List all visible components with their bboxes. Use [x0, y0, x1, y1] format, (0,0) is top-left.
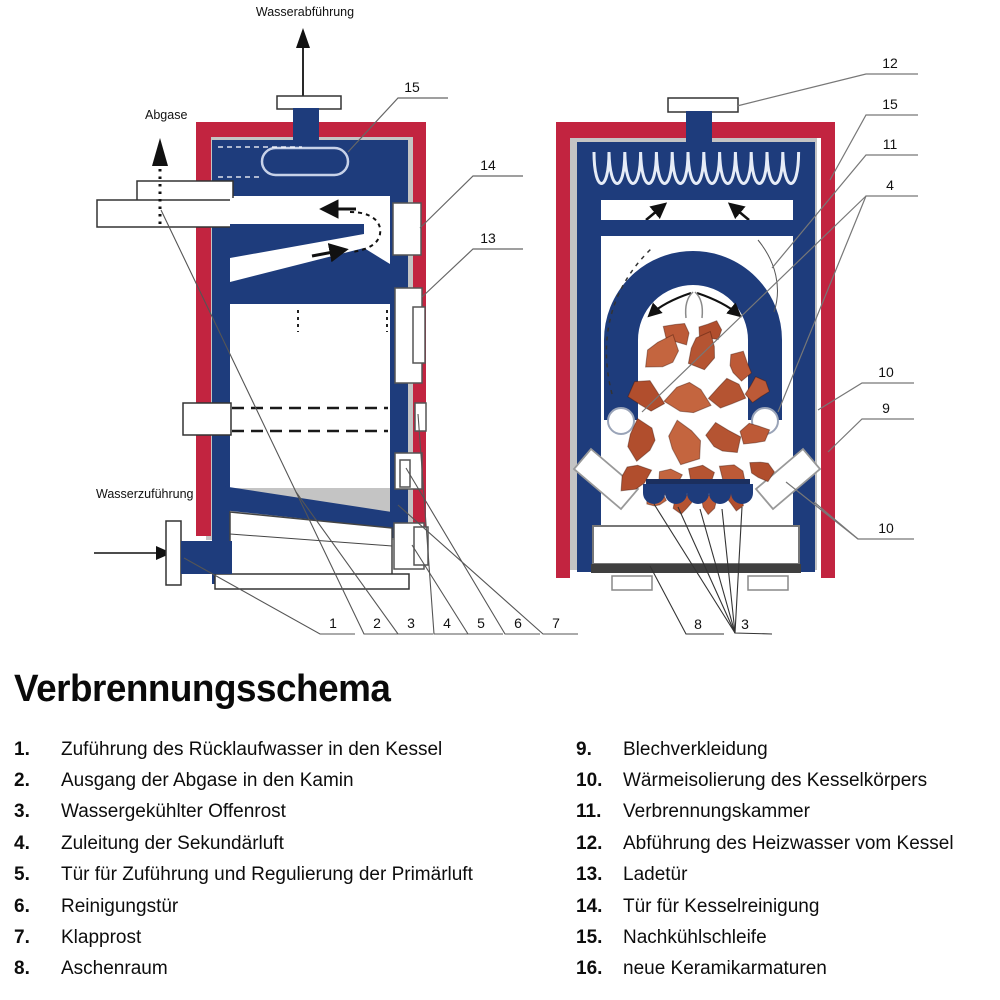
legend-item: 9.Blechverkleidung [576, 734, 996, 765]
legend-number: 9. [576, 739, 623, 761]
air-nozzle-left [608, 408, 634, 434]
legend-item: 16.neue Keramikarmaturen [576, 954, 996, 985]
legend-item: 5.Tür für Zuführung und Regulierung der … [14, 860, 566, 891]
part-number-3: 3 [407, 615, 415, 631]
legend-number: 1. [14, 739, 61, 761]
legend-label: Aschenraum [61, 958, 566, 980]
foot-right [748, 576, 788, 590]
flue-label: Abgase [145, 108, 187, 122]
legend-item: 2.Ausgang der Abgase in den Kamin [14, 765, 566, 796]
part-number-7: 7 [552, 615, 560, 631]
legend-label: Klapprost [61, 927, 566, 949]
cleaning-door-top [393, 203, 421, 255]
legend-label: Tür für Zuführung und Regulierung der Pr… [61, 864, 566, 886]
foot-left [612, 576, 652, 590]
legend-number: 2. [14, 770, 61, 792]
part-number-3-right: 3 [741, 616, 749, 632]
part-number-2: 2 [373, 615, 381, 631]
legend-label: Ladetür [623, 864, 996, 886]
right-ash-chamber [591, 526, 801, 590]
water-out-label: Wasserabführung [256, 5, 354, 19]
legend-item: 11.Verbrennungskammer [576, 797, 996, 828]
legend-label: Zuführung des Rücklaufwasser in den Kess… [61, 739, 566, 761]
callout-number-14: 14 [480, 157, 496, 173]
legend-item: 3.Wassergekühlter Offenrost [14, 797, 566, 828]
legend-label: neue Keramikarmaturen [623, 958, 996, 980]
legend-number: 13. [576, 864, 623, 886]
legend-number: 14. [576, 896, 623, 918]
legend-label: Zuleitung der Sekundärluft [61, 833, 566, 855]
callout-number-9: 9 [882, 400, 890, 416]
legend-item: 8.Aschenraum [14, 954, 566, 985]
page-title: Verbrennungsschema [14, 668, 390, 711]
legend-label: Ausgang der Abgase in den Kamin [61, 770, 566, 792]
base-plate [215, 574, 409, 589]
legend-item: 13.Ladetür [576, 860, 996, 891]
legend-item: 15.Nachkühlschleife [576, 922, 996, 953]
legend-number: 12. [576, 833, 623, 855]
up-arrow-icon [296, 28, 310, 48]
left-bottom-numbers: 1 2 3 4 5 6 7 [329, 615, 560, 631]
legend-item: 1.Zuführung des Rücklaufwasser in den Ke… [14, 734, 566, 765]
legend-number: 3. [14, 801, 61, 823]
legend-item: 14.Tür für Kesselreinigung [576, 891, 996, 922]
legend-number: 4. [14, 833, 61, 855]
callout-number-10-lower: 10 [878, 520, 894, 536]
legend-item: 6.Reinigungstür [14, 891, 566, 922]
legend-number: 11. [576, 801, 623, 823]
legend-number: 8. [14, 958, 61, 980]
legend-label: Wärmeisolierung des Kesselkörpers [623, 770, 996, 792]
legend-item: 10.Wärmeisolierung des Kesselkörpers [576, 765, 996, 796]
legend-number: 15. [576, 927, 623, 949]
legend-item: 12.Abführung des Heizwasser vom Kessel [576, 828, 996, 859]
legend-label: Wassergekühlter Offenrost [61, 801, 566, 823]
boiler-diagram: Wasserabführung Abgase Wasserzuführung 1… [0, 0, 1000, 662]
callout-number-15-left: 15 [404, 79, 420, 95]
legend-label: Tür für Kesselreinigung [623, 896, 996, 918]
legend-label: Reinigungstür [61, 896, 566, 918]
legend-number: 5. [14, 864, 61, 886]
legend-item: 7.Klapprost [14, 922, 566, 953]
legend-number: 16. [576, 958, 623, 980]
dotted-up-arrow-icon [152, 138, 168, 166]
part-number-1: 1 [329, 615, 337, 631]
legend-number: 7. [14, 927, 61, 949]
legend-label: Blechverkleidung [623, 739, 996, 761]
water-in-label: Wasserzuführung [96, 487, 194, 501]
left-pipe-stub [183, 403, 231, 435]
callout-number-11: 11 [883, 136, 898, 152]
legend-label: Verbrennungskammer [623, 801, 996, 823]
legend-label: Abführung des Heizwasser vom Kessel [623, 833, 996, 855]
legend-number: 10. [576, 770, 623, 792]
part-number-6: 6 [514, 615, 522, 631]
right-boiler-section: 12 15 11 4 10 9 10 8 3 [556, 55, 918, 634]
legend-number: 6. [14, 896, 61, 918]
part-number-5: 5 [477, 615, 485, 631]
callout-number-15-right: 15 [882, 96, 898, 112]
legend-label: Nachkühlschleife [623, 927, 996, 949]
part-number-4: 4 [443, 615, 451, 631]
legend-item: 4.Zuleitung der Sekundärluft [14, 828, 566, 859]
callout-number-10-upper: 10 [878, 364, 894, 380]
grate-scallops [643, 479, 753, 504]
secondary-air-stub [415, 403, 426, 431]
legend-left-column: 1.Zuführung des Rücklaufwasser in den Ke… [14, 734, 566, 985]
legend-right-column: 9.Blechverkleidung 10.Wärmeisolierung de… [576, 734, 996, 985]
callout-number-13: 13 [480, 230, 496, 246]
left-boiler-section: Wasserabführung Abgase Wasserzuführung 1… [94, 5, 578, 634]
callout-number-4: 4 [886, 177, 894, 193]
part-number-8: 8 [694, 616, 702, 632]
callout-number-12: 12 [882, 55, 898, 71]
